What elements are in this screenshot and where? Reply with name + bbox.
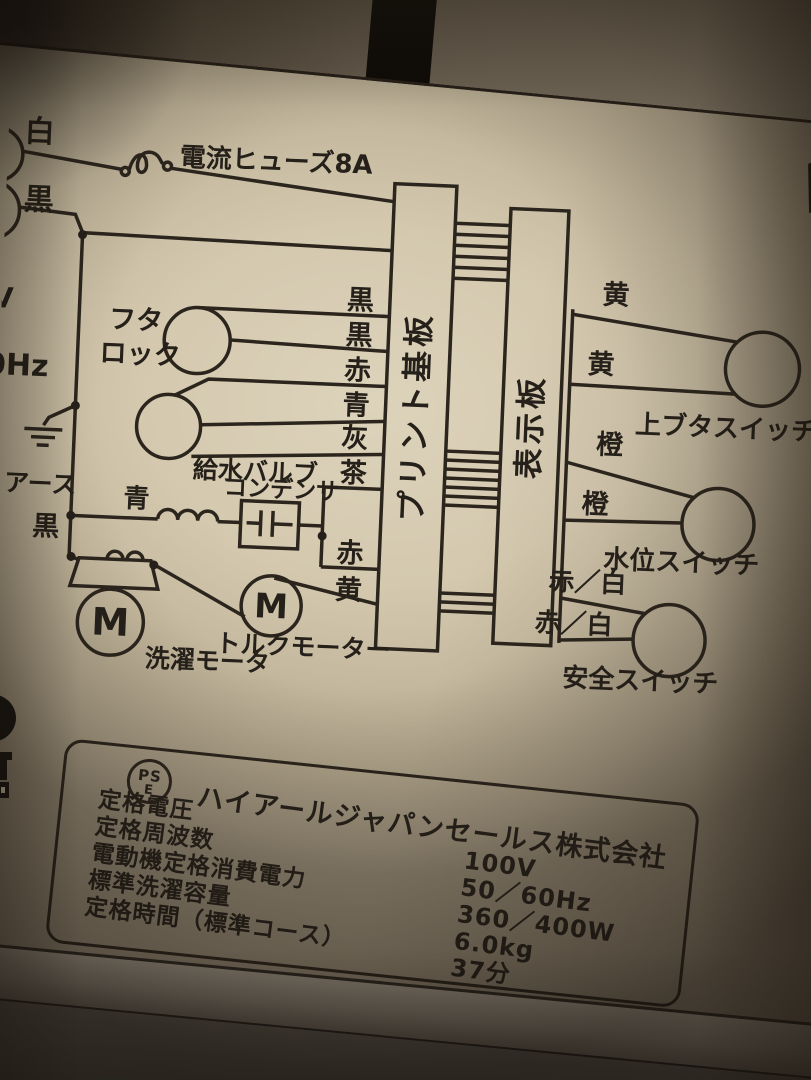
water-level-switch-label: 水位スイッチ [603,544,760,582]
fuse-end-right [163,162,171,170]
display-board-label: 表示板 [511,373,551,479]
wire-color-label: 橙 [596,429,625,461]
wire-color-label: 黄 [334,575,362,607]
water-valve-circle [135,393,202,460]
left-bus [69,233,83,556]
left-sticker-fragment-square [0,782,9,798]
lid-lock-label-2: ロック [99,337,181,371]
left-sticker-fragment-bar [0,758,7,780]
junction-dot [66,511,75,520]
cap-node-wire [299,525,323,526]
motor-m-symbol: M [91,599,131,645]
wire-yellow-1 [572,314,739,342]
white-wire [21,151,121,169]
wire-color-label: 赤 [336,538,364,570]
wire-yellow-2 [570,384,736,394]
top-lid-switch-label: 上ブタスイッチ [634,409,811,448]
bus-black-label: 黒 [32,511,60,543]
diagram-labels: 白 黒 電流ヒューズ8A V 0Hz フタ ロック 給水バルブ アース 黒 青 … [0,113,811,703]
left-sticker-fragment-inner [1,787,5,793]
junction-dot [317,531,326,540]
wire-color-label: 黒 [346,285,374,317]
ribbon-bottom [439,593,495,613]
blue-label: 青 [123,484,150,515]
black-wire-to-pcb [17,207,393,251]
photo-scene: 白 黒 電流ヒューズ8A V 0Hz フタ ロック 給水バルブ アース 黒 青 … [0,0,811,1080]
ribbon-top [453,223,510,280]
wire-color-label: 灰 [341,423,369,455]
spec-value-column: 100V 50／60Hz 360／400W 6.0kg 37分 [449,847,623,1001]
earth-symbol [24,428,63,446]
wire-color-label: 茶 [339,458,368,490]
coil-to-cap-wire [218,522,241,523]
edge-fragment [806,157,811,214]
wire-color-label: 黄 [602,280,630,312]
wiring-diagram: 白 黒 電流ヒューズ8A V 0Hz フタ ロック 給水バルブ アース 黒 青 … [0,0,811,717]
top-lid-switch-circle [724,331,801,408]
plug-black-label: 黒 [23,182,54,218]
wire-color-label: 赤／白 [534,607,613,641]
wire-color-label: 黒 [345,320,373,352]
wire-color-label: 橙 [581,489,610,521]
plug-white-label: 白 [24,114,55,150]
wire-color-label: 赤 [343,355,371,387]
lid-lock-label-1: フタ [108,304,163,337]
inductor-coil [158,509,218,522]
capacitor-plates [246,510,293,538]
ribbon-middle [444,451,501,507]
fuse-symbol [129,151,163,173]
capacitor-label: コンデンサ [224,474,340,506]
cut-freq-label: 0Hz [0,347,49,385]
earth-label: アース [3,468,76,500]
wire-color-label: 青 [342,390,370,422]
wire-color-label: 黄 [587,349,615,381]
safety-switch-label: 安全スイッチ [562,662,719,700]
protector-bar [70,557,159,589]
motor-link-wire [151,564,247,617]
blue-feed-wire [71,515,158,519]
motor-m-symbol: M [253,586,288,627]
earth-branch [44,404,76,426]
cut-voltage-label: V [0,281,14,315]
pcb-label: プリント基板 [394,311,439,522]
